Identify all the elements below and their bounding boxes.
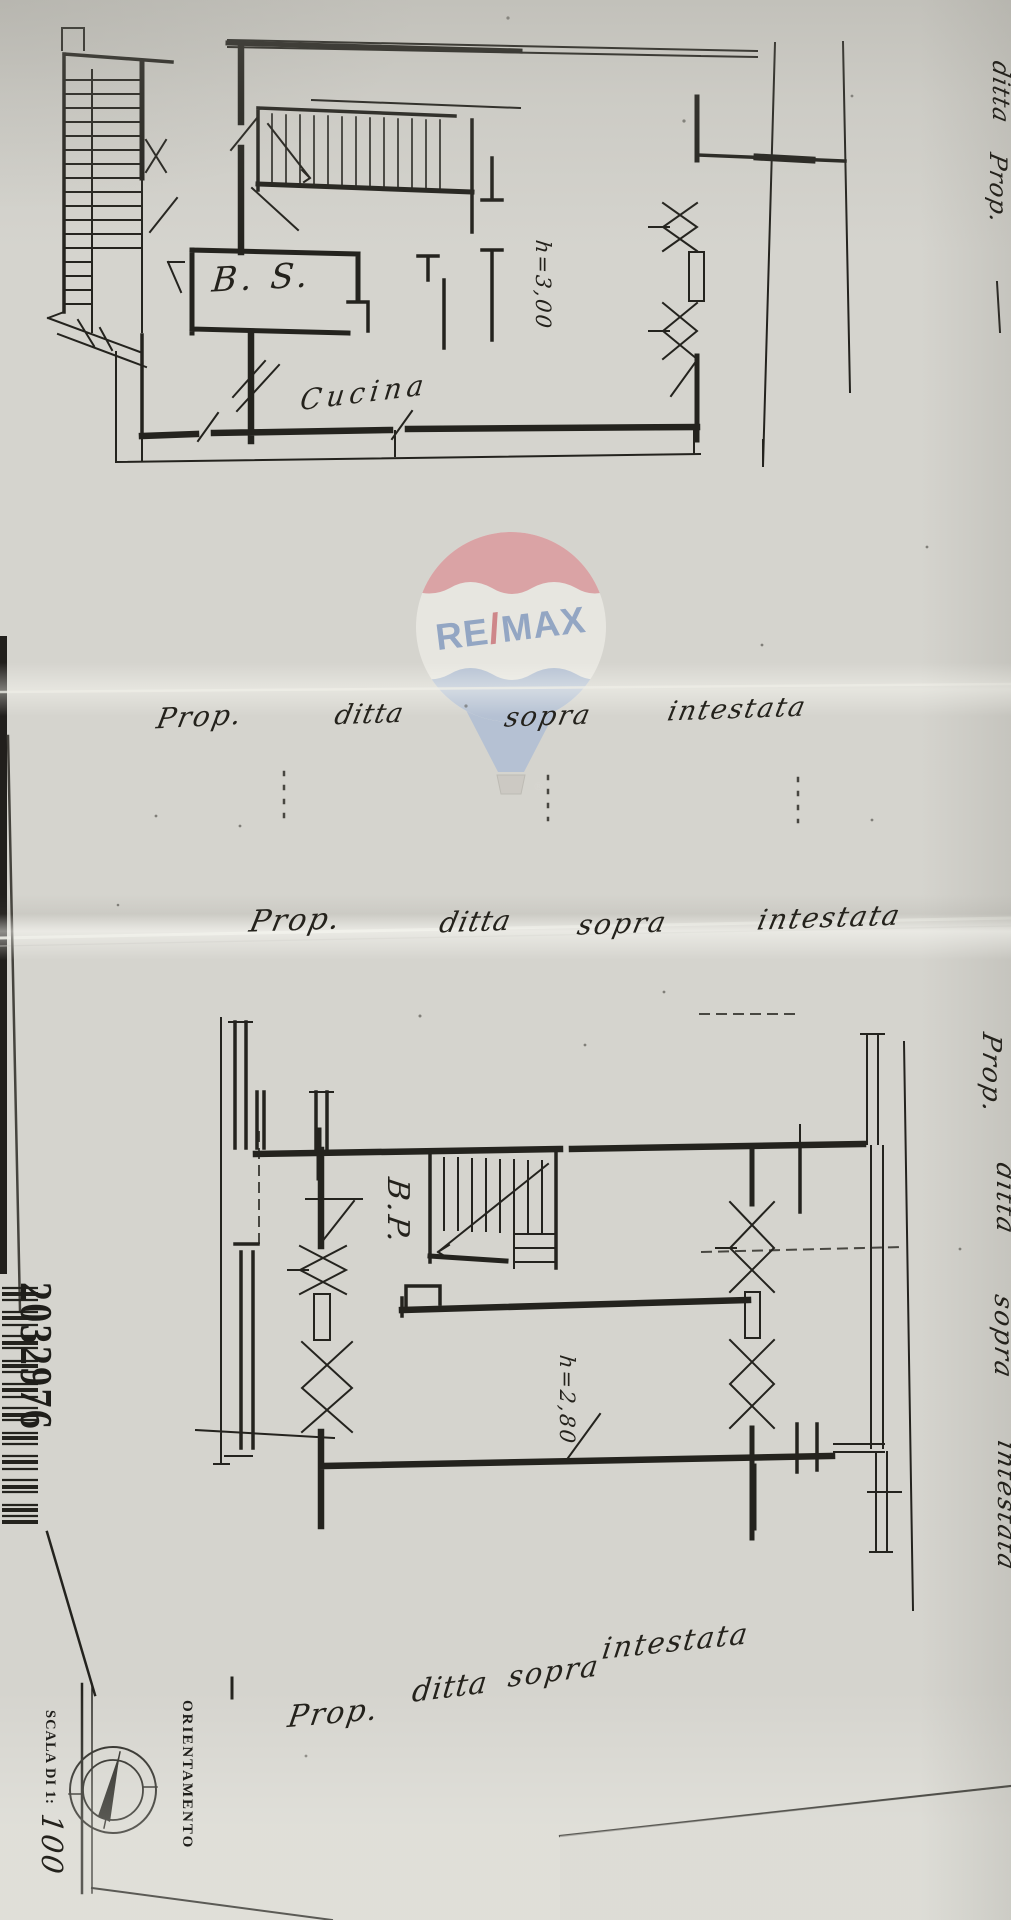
- height-label-upper: h=3,00: [532, 239, 553, 331]
- annotation-r2-w4: intestata: [755, 898, 905, 936]
- margin-annotation-w1: Prop.: [978, 1030, 1004, 1116]
- annotation-r1-w2: ditta: [332, 698, 407, 732]
- orientation-label: ORIENTAMENTO: [179, 1700, 194, 1849]
- annotation-r2-w2: ditta: [436, 904, 514, 940]
- scale-label: SCALA DI 1:: [43, 1710, 58, 1805]
- annotation-r1-w1: Prop.: [154, 698, 246, 736]
- fold-line: [8, 736, 20, 1310]
- room-label-bp: B.P.: [382, 1176, 412, 1247]
- title-block-frame: [82, 1678, 232, 1893]
- floor-plan-linework: [0, 0, 1011, 1920]
- annotation-r1-w4: intestata: [665, 691, 810, 727]
- scale-value: 100: [37, 1812, 66, 1877]
- margin-fragment-1: ditta: [989, 59, 1011, 126]
- pen-stroke: [47, 1532, 95, 1695]
- margin-annotation-w2: ditta: [992, 1160, 1011, 1237]
- room-label-bs: B. S.: [210, 255, 313, 300]
- annotation-r1-w3: sopra: [502, 699, 595, 733]
- scanned-floorplan-page: RE/MAX ®: [0, 0, 1011, 1920]
- upper-floor-plan: [48, 28, 850, 466]
- margin-fragment-2: Prop.: [986, 151, 1010, 226]
- lower-floor-plan: [196, 1014, 913, 1610]
- registry-number-stamp: 2032976: [13, 1282, 59, 1431]
- annotation-r2-w1: Prop.: [246, 901, 345, 939]
- sheet-edges: [92, 1786, 1011, 1920]
- margin-annotation-w4: intestata: [994, 1439, 1011, 1574]
- compass-icon: [69, 1747, 157, 1833]
- margin-annotation-w3: sopra: [990, 1292, 1011, 1381]
- annotation-r2-w3: sopra: [574, 905, 670, 941]
- height-label-lower: h=2,80: [556, 1354, 577, 1446]
- pen-stroke-top-right: [997, 282, 1000, 332]
